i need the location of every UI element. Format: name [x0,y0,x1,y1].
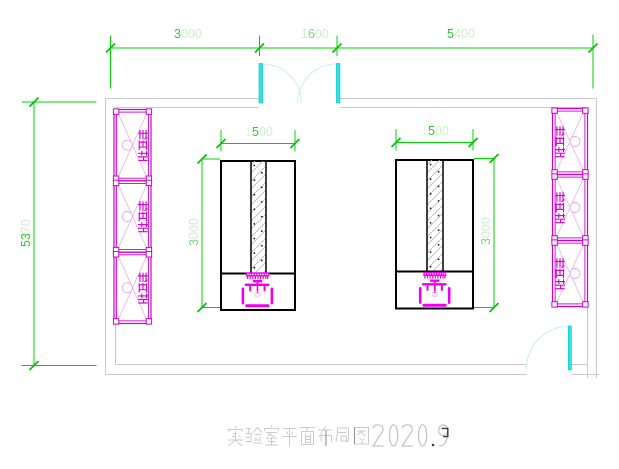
svg-text:5370: 5370 [19,219,33,247]
svg-text:3000: 3000 [187,218,201,246]
svg-text:3000: 3000 [174,27,202,41]
svg-text:5400: 5400 [447,27,475,41]
svg-text:1600: 1600 [301,27,329,41]
svg-text:3000: 3000 [479,217,493,245]
svg-text:1500: 1500 [245,125,273,139]
svg-text:1500: 1500 [421,124,449,138]
